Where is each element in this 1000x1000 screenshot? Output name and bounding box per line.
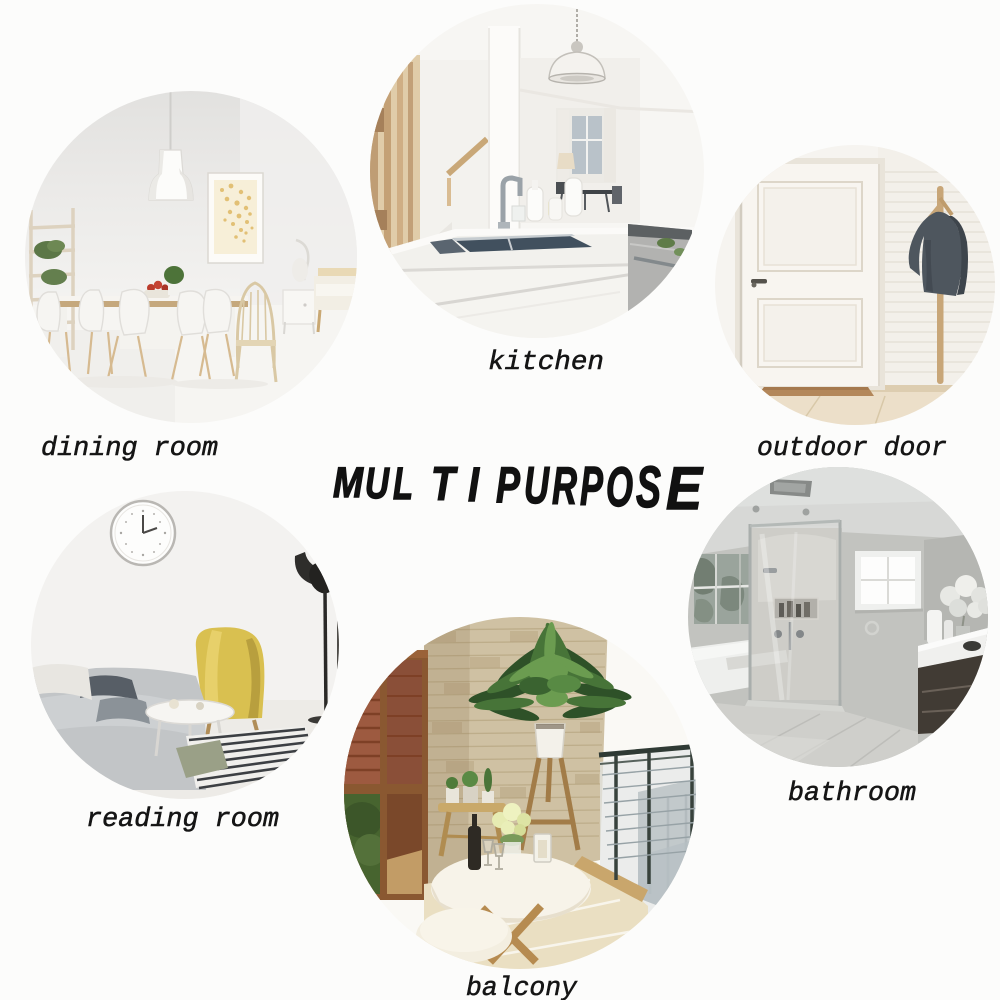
svg-text:R: R bbox=[552, 457, 577, 516]
svg-text:I: I bbox=[468, 459, 480, 512]
svg-text:P: P bbox=[496, 457, 520, 513]
svg-text:T: T bbox=[431, 457, 459, 510]
svg-text:M: M bbox=[333, 459, 364, 507]
svg-text:E: E bbox=[666, 455, 704, 522]
svg-text:O: O bbox=[606, 455, 633, 518]
svg-text:balcony: balcony bbox=[466, 974, 578, 1000]
svg-text:U: U bbox=[365, 459, 390, 508]
svg-text:P: P bbox=[580, 455, 603, 517]
svg-text:dining room: dining room bbox=[41, 434, 218, 464]
svg-text:S: S bbox=[636, 455, 661, 520]
svg-text:L: L bbox=[393, 458, 413, 509]
svg-text:bathroom: bathroom bbox=[788, 779, 916, 809]
svg-text:kitchen: kitchen bbox=[488, 348, 604, 378]
svg-text:outdoor door: outdoor door bbox=[757, 434, 947, 464]
svg-text:reading room: reading room bbox=[86, 805, 279, 835]
svg-text:U: U bbox=[524, 457, 550, 515]
